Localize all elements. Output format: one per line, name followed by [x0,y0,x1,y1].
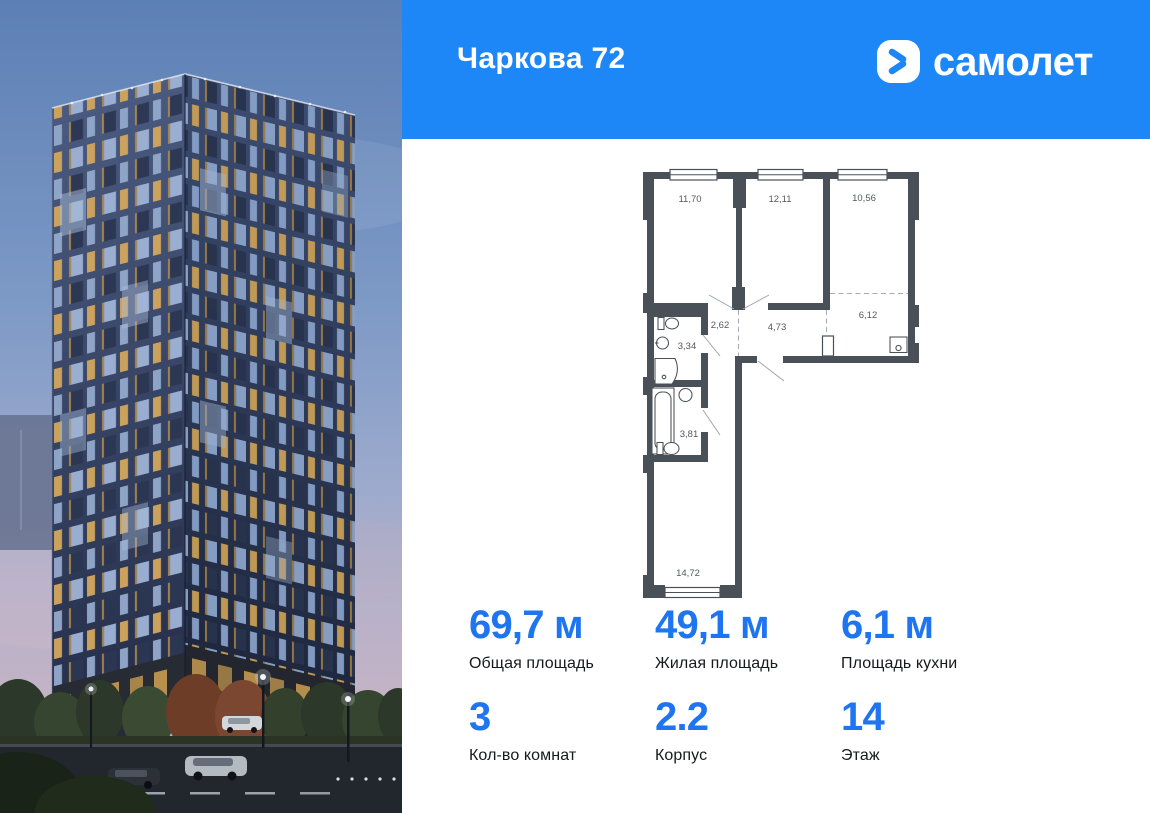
building-photo-art [0,0,402,813]
area-label-room1: 11,70 [678,194,701,205]
stat-room-count: 3 Кол-во комнат [469,697,576,765]
floor-plan: 11,70 12,11 10,56 2,62 4,73 6,12 3,34 3,… [640,165,925,605]
floor-plan-drawing: 11,70 12,11 10,56 2,62 4,73 6,12 3,34 3,… [640,165,925,605]
stat-floor: 14 Этаж [841,697,884,765]
stat-label: Жилая площадь [655,655,778,673]
tower-left-face [52,74,185,757]
stat-label: Площадь кухни [841,655,957,673]
stat-kitchen-area: 6,1 м Площадь кухни [841,605,957,673]
area-label-bathroom-large: 3,81 [680,429,699,440]
listing-panel: Чаркова 72 самолет [402,0,1150,813]
stat-value: 3 [469,697,576,737]
area-label-kitchen: 6,12 [859,310,878,321]
area-label-living-room: 14,72 [676,568,700,579]
stat-value: 69,7 м [469,605,594,645]
plan-walls [643,172,919,598]
stat-label: Этаж [841,747,884,765]
entry-door-leaf [823,336,834,356]
header: Чаркова 72 самолет [402,0,1150,139]
brand-logo[interactable]: самолет [877,40,1093,83]
area-label-room3: 10,56 [852,193,876,204]
project-title: Чаркова 72 [457,42,625,76]
stat-label: Кол-во комнат [469,747,576,765]
stat-value: 14 [841,697,884,737]
area-label-hall-small: 2,62 [711,320,730,331]
stat-living-area: 49,1 м Жилая площадь [655,605,778,673]
stat-value: 6,1 м [841,605,957,645]
brand-logo-text: самолет [933,42,1093,82]
tower-right-face [185,74,355,760]
samolet-chevron-icon [877,40,920,83]
door-swing-lines [703,295,784,435]
area-label-bathroom-small: 3,34 [678,341,697,352]
stat-total-area: 69,7 м Общая площадь [469,605,594,673]
area-label-room2: 12,11 [768,194,791,205]
stat-value: 2.2 [655,697,708,737]
stat-building: 2.2 Корпус [655,697,708,765]
stat-label: Корпус [655,747,708,765]
area-label-hallway: 4,73 [768,322,787,333]
stat-label: Общая площадь [469,655,594,673]
building-photo [0,0,402,813]
stat-value: 49,1 м [655,605,778,645]
listing-card: Чаркова 72 самолет [0,0,1150,813]
